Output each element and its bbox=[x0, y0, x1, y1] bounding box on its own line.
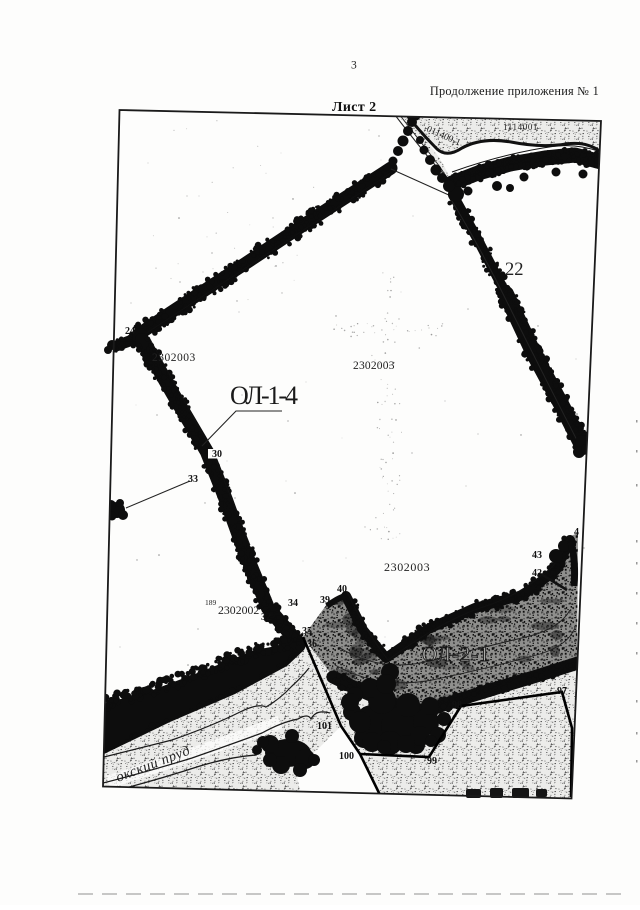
svg-text:98: 98 bbox=[452, 700, 462, 711]
svg-text:32: 32 bbox=[261, 612, 271, 623]
svg-text:30: 30 bbox=[212, 449, 222, 460]
svg-text:1114001: 1114001 bbox=[503, 122, 538, 132]
svg-text:2302003: 2302003 bbox=[384, 560, 430, 574]
svg-text:34: 34 bbox=[288, 598, 298, 609]
svg-text:36: 36 bbox=[307, 639, 317, 650]
svg-text:97: 97 bbox=[557, 686, 567, 697]
svg-text:4: 4 bbox=[574, 527, 579, 538]
svg-text:99: 99 bbox=[427, 756, 437, 767]
svg-text:101: 101 bbox=[317, 721, 332, 732]
svg-text:ОЛ-1-4: ОЛ-1-4 bbox=[230, 381, 298, 410]
svg-text:22: 22 bbox=[505, 260, 524, 280]
svg-text:33: 33 bbox=[188, 474, 198, 485]
svg-text:2302003: 2302003 bbox=[353, 360, 395, 372]
svg-text:2302003: 2302003 bbox=[152, 352, 196, 364]
svg-text:ОЛ-2-1: ОЛ-2-1 bbox=[422, 642, 490, 666]
svg-text:Продолжение приложения № 1: Продолжение приложения № 1 bbox=[430, 84, 599, 98]
svg-text:100: 100 bbox=[339, 751, 354, 762]
svg-text:189: 189 bbox=[205, 598, 217, 607]
svg-text:43: 43 bbox=[532, 550, 542, 561]
svg-text:39: 39 bbox=[320, 595, 330, 606]
svg-text:35: 35 bbox=[302, 626, 312, 637]
svg-text:2302002: 2302002 bbox=[218, 603, 259, 617]
svg-text:40: 40 bbox=[337, 584, 347, 595]
svg-text:24: 24 bbox=[125, 326, 135, 337]
svg-text:Лист 2: Лист 2 bbox=[332, 100, 377, 115]
svg-text:42: 42 bbox=[532, 568, 542, 579]
svg-text:3: 3 bbox=[351, 60, 357, 72]
